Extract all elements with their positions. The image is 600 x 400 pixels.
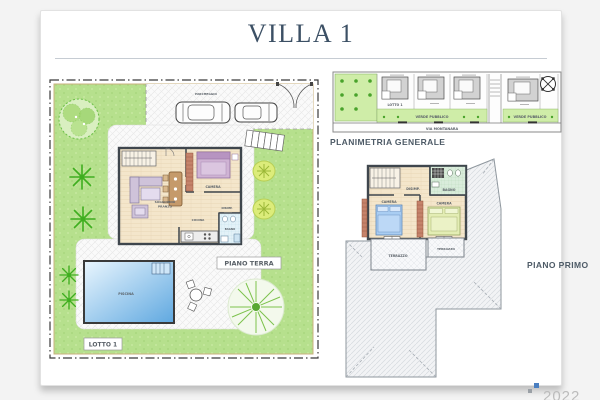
staircase [370, 168, 400, 188]
living-label-line1: SOGGIORNO [155, 200, 176, 204]
page: VILLA 1 [0, 0, 600, 400]
kitchen-counter [181, 231, 218, 242]
roundabout-symbol [541, 77, 556, 92]
general-lot-label: LOTTO 1 [387, 103, 402, 107]
bedroom-label: CAMERA [205, 185, 221, 189]
terrace: TERRAZZO [371, 239, 426, 270]
logo-square-blue [534, 383, 539, 388]
sketch-tree [59, 99, 99, 139]
green-label: VERDE PUBBLICO [415, 115, 448, 119]
watermark-year: 2022 [543, 388, 580, 400]
bush [253, 199, 275, 219]
palm-tree [60, 266, 78, 284]
bath-label: BAGNO [443, 188, 456, 192]
lotto-label: LOTTO 1 [84, 338, 122, 350]
parking-label: PARCHEGGIO [195, 92, 217, 96]
bath-label: BAGNO [225, 227, 236, 231]
svg-text:PIANO TERRA: PIANO TERRA [224, 260, 273, 268]
house-first-floor: BAGNO DISIMP. CAMERA CAMERA [362, 166, 466, 242]
car-2 [235, 103, 277, 122]
bed-blue [376, 205, 402, 235]
car-1 [176, 102, 230, 123]
house-footprints [382, 77, 538, 101]
watermark-logo: 2022 [521, 381, 600, 400]
wardrobe-strip [186, 153, 193, 191]
svg-text:LOTTO 1: LOTTO 1 [89, 342, 117, 349]
living-label-line2: PRANZO [158, 205, 173, 209]
kitchen-label: CUCINA [192, 218, 205, 222]
general-plan-title: PLANIMETRIA GENERALE [330, 137, 445, 147]
page-title: VILLA 1 [41, 19, 561, 49]
staircase [122, 151, 156, 166]
bed-green [428, 207, 460, 235]
bedroom-label: CAMERA [381, 200, 397, 204]
pool-label: PISCINA [118, 292, 134, 296]
swimming-pool: PISCINA [84, 261, 174, 323]
terrace-label: TERRAZZO [437, 247, 455, 251]
drawing-sheet: VILLA 1 [40, 10, 562, 386]
first-floor-title: PIANO PRIMO [527, 260, 589, 270]
piano-terra-label: PIANO TERRA [217, 257, 281, 269]
site-plan-drawing: PARCHEGGIO [46, 67, 323, 369]
road-label: VIA MONTANARA [426, 127, 459, 131]
palm-tree [71, 207, 95, 231]
logo-square-gray [528, 389, 532, 393]
hall-label: DISIMP. [406, 187, 419, 191]
terrace-label: TERRAZZO [388, 254, 407, 258]
palm-tree [60, 291, 78, 309]
terrace: TERRAZZO [428, 238, 464, 257]
bedroom-label: CAMERA [436, 202, 452, 206]
bush [253, 161, 275, 181]
dandelion-tree [228, 279, 284, 335]
green-label: VERDE PUBBLICO [513, 115, 546, 119]
title-divider [55, 58, 547, 59]
house-ground-floor: CAMERA SOGGIORNO PRANZO [119, 148, 241, 244]
general-plan-drawing: LOTTO 1 VERDE PUBBLICO VERDE PUBBLICO VI… [332, 71, 564, 135]
palm-tree [70, 165, 94, 189]
hall-label: DISIMP. [222, 206, 233, 210]
